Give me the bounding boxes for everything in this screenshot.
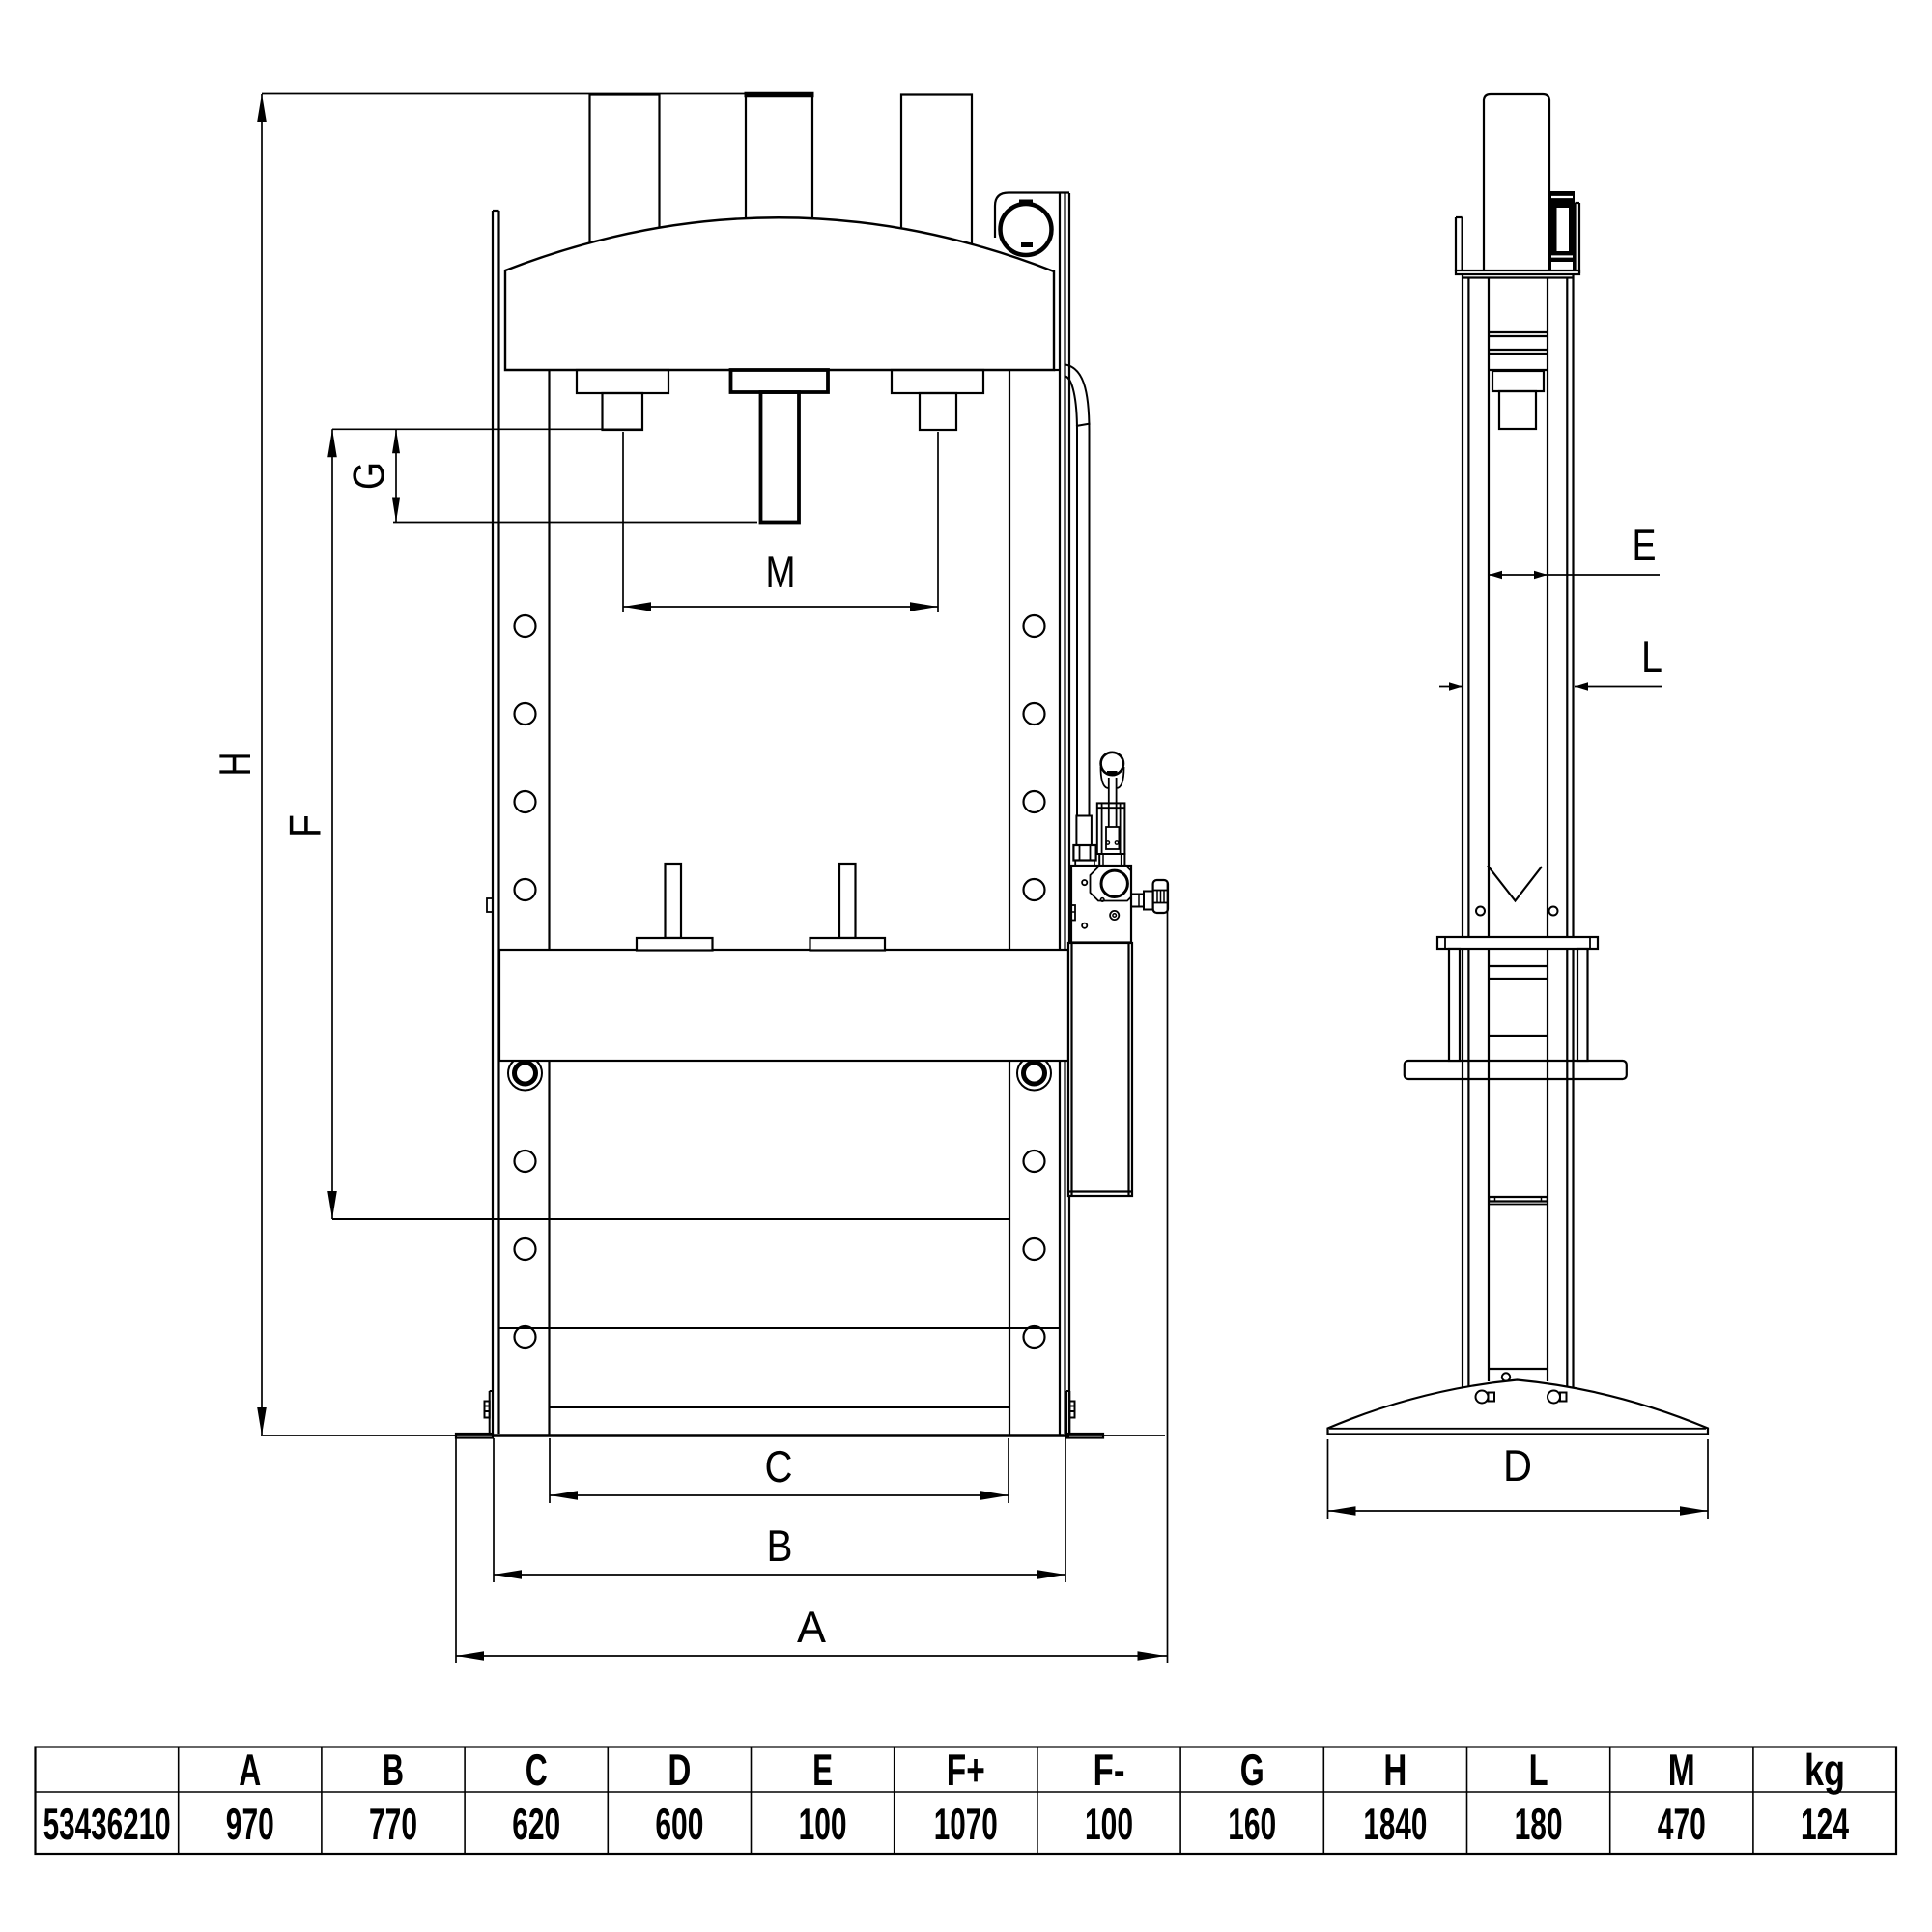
svg-text:E: E xyxy=(812,1745,833,1795)
svg-text:D: D xyxy=(1503,1440,1532,1491)
svg-text:F+: F+ xyxy=(947,1745,985,1795)
svg-text:F: F xyxy=(280,814,330,838)
svg-text:A: A xyxy=(797,1602,826,1652)
svg-text:770: 770 xyxy=(369,1799,417,1849)
svg-text:53436210: 53436210 xyxy=(43,1799,171,1849)
svg-text:kg: kg xyxy=(1804,1745,1845,1795)
svg-text:H: H xyxy=(210,753,260,777)
svg-text:G: G xyxy=(343,462,393,490)
svg-text:C: C xyxy=(526,1745,548,1795)
svg-text:L: L xyxy=(1529,1745,1548,1795)
svg-text:100: 100 xyxy=(1085,1799,1133,1849)
svg-text:B: B xyxy=(383,1745,404,1795)
svg-text:M: M xyxy=(1668,1745,1695,1795)
svg-text:600: 600 xyxy=(655,1799,703,1849)
svg-text:L: L xyxy=(1641,632,1662,682)
svg-text:470: 470 xyxy=(1658,1799,1706,1849)
svg-text:D: D xyxy=(668,1745,691,1795)
svg-text:E: E xyxy=(1633,520,1657,570)
svg-text:1070: 1070 xyxy=(934,1799,998,1849)
svg-text:H: H xyxy=(1383,1745,1406,1795)
svg-text:A: A xyxy=(239,1745,261,1795)
svg-text:124: 124 xyxy=(1801,1799,1849,1849)
svg-text:180: 180 xyxy=(1515,1799,1563,1849)
svg-text:G: G xyxy=(1240,1745,1264,1795)
svg-text:B: B xyxy=(767,1520,793,1571)
svg-text:F-: F- xyxy=(1094,1745,1125,1795)
svg-text:970: 970 xyxy=(226,1799,274,1849)
svg-text:160: 160 xyxy=(1228,1799,1276,1849)
svg-text:M: M xyxy=(766,547,796,597)
svg-text:100: 100 xyxy=(799,1799,847,1849)
svg-text:C: C xyxy=(765,1441,793,1492)
svg-text:620: 620 xyxy=(512,1799,560,1849)
svg-text:1840: 1840 xyxy=(1363,1799,1427,1849)
